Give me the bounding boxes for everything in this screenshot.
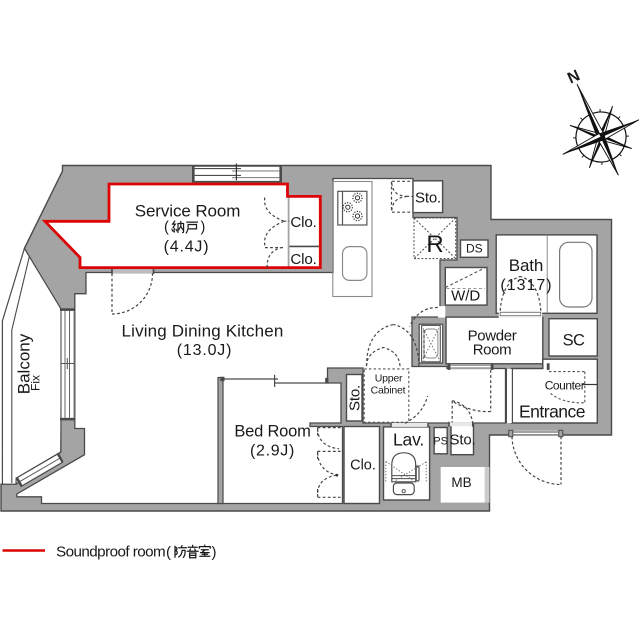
svg-text:MB: MB (451, 475, 471, 490)
svg-text:Clo.: Clo. (350, 458, 376, 474)
svg-text:(13.0J): (13.0J) (177, 342, 232, 359)
svg-text:): ) (212, 544, 217, 561)
svg-text:R: R (426, 231, 443, 258)
svg-text:(: ( (164, 220, 169, 236)
svg-text:Clo.: Clo. (290, 214, 316, 231)
svg-text:Bed Room: Bed Room (234, 423, 310, 441)
svg-text:DS: DS (466, 242, 483, 256)
svg-text:W/D: W/D (451, 288, 480, 305)
svg-text:Sto.: Sto. (347, 385, 364, 411)
svg-text:Fix: Fix (29, 375, 43, 391)
svg-text:PS: PS (433, 436, 448, 448)
svg-text:Sto.: Sto. (450, 432, 476, 449)
svg-text:SC: SC (563, 332, 585, 350)
svg-text:Room: Room (473, 342, 512, 359)
svg-text:Clo.: Clo. (290, 251, 316, 268)
svg-text:Living Dining Kitchen: Living Dining Kitchen (122, 322, 284, 341)
svg-text:(1317): (1317) (500, 277, 552, 294)
svg-text:): ) (201, 220, 206, 236)
svg-text:Soundproof room: Soundproof room (56, 544, 165, 561)
svg-text:(: ( (166, 544, 171, 561)
svg-text:(2.9J): (2.9J) (250, 443, 295, 460)
svg-text:Service Room: Service Room (135, 202, 241, 221)
svg-text:(4.4J): (4.4J) (164, 239, 210, 256)
svg-text:Cabinet: Cabinet (371, 385, 406, 397)
svg-text:Counter: Counter (545, 379, 585, 393)
svg-text:Sto.: Sto. (415, 190, 441, 207)
svg-text:Entrance: Entrance (519, 402, 585, 422)
svg-text:Lav.: Lav. (393, 430, 424, 450)
svg-text:Bath: Bath (509, 256, 544, 275)
svg-text:Upper: Upper (375, 373, 403, 385)
